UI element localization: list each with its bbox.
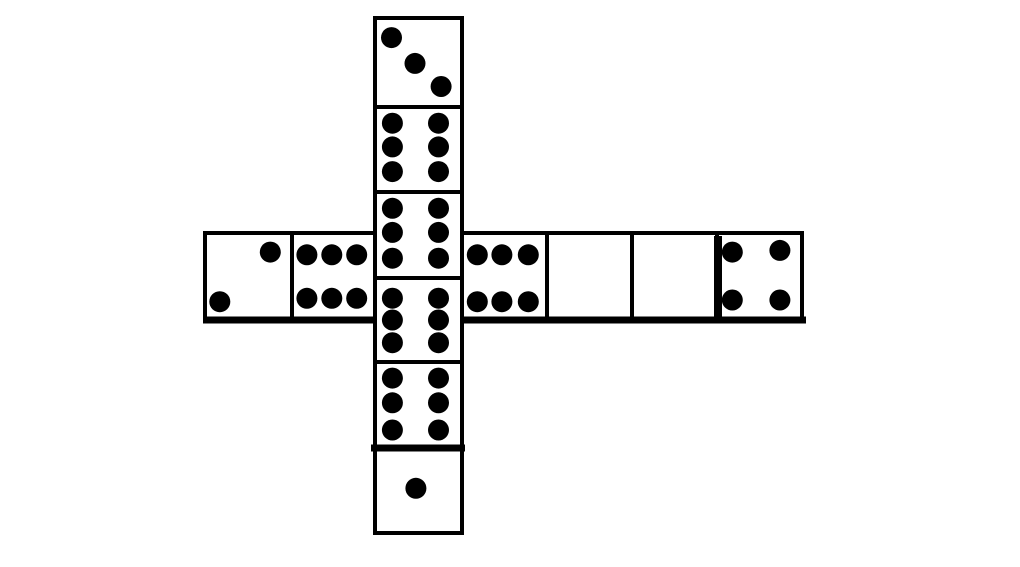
domino-cell-vertical-1-three (375, 18, 462, 107)
domino-cell-vertical-2-six (375, 107, 462, 192)
pip (428, 288, 449, 309)
pip (491, 291, 512, 312)
pip (405, 53, 426, 74)
pip (428, 420, 449, 441)
pip (428, 368, 449, 389)
pip (405, 478, 426, 499)
domino-cell-border (547, 233, 632, 320)
pip (382, 161, 403, 182)
domino-cell-border (632, 233, 717, 320)
pip (467, 291, 488, 312)
pip (428, 136, 449, 157)
pip (321, 288, 342, 309)
pip (321, 244, 342, 265)
pip (382, 392, 403, 413)
pip (722, 242, 743, 263)
pip (260, 242, 281, 263)
pip (382, 288, 403, 309)
pip (428, 113, 449, 134)
pip (381, 27, 402, 48)
pip (769, 290, 790, 311)
pip (428, 222, 449, 243)
pip (518, 291, 539, 312)
pip (467, 244, 488, 265)
pip (382, 222, 403, 243)
pip (296, 288, 317, 309)
pip (428, 392, 449, 413)
domino-cell-horizontal-6-four (717, 233, 802, 320)
pip (769, 240, 790, 261)
pip (382, 368, 403, 389)
figure-svg (0, 0, 1020, 567)
domino-cell-vertical-6-one (375, 447, 462, 533)
pip (518, 244, 539, 265)
pip (209, 291, 230, 312)
domino-cell-horizontal-2-six (292, 233, 375, 320)
pip (428, 248, 449, 269)
pip (491, 244, 512, 265)
pip (428, 310, 449, 331)
pip (382, 113, 403, 134)
domino-cell-horizontal-5-blank (632, 233, 717, 320)
domino-cell-vertical-5-six (375, 362, 462, 447)
pip (382, 198, 403, 219)
pip (428, 161, 449, 182)
pip (431, 76, 452, 97)
pip (296, 244, 317, 265)
pip (382, 332, 403, 353)
pip (382, 136, 403, 157)
domino-cell-horizontal-1-two (205, 233, 292, 320)
pip (382, 420, 403, 441)
pip (382, 248, 403, 269)
domino-cell-horizontal-4-blank (547, 233, 632, 320)
pip (722, 290, 743, 311)
pip (428, 332, 449, 353)
domino-cell-horizontal-3-six (462, 233, 547, 320)
domino-cross-figure (0, 0, 1020, 567)
pip (346, 288, 367, 309)
pip (382, 310, 403, 331)
domino-cell-vertical-4-six (375, 278, 462, 362)
pip (428, 198, 449, 219)
domino-cell-vertical-3-six (375, 192, 462, 278)
pip (346, 244, 367, 265)
